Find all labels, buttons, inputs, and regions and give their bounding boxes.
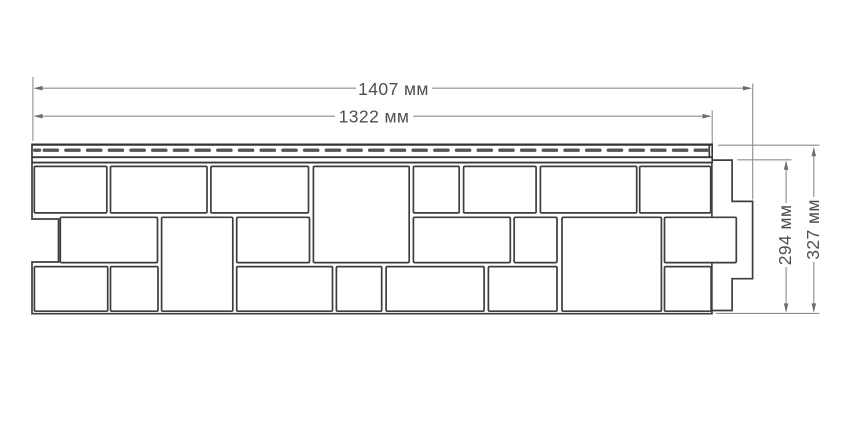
svg-text:1322 мм: 1322 мм	[339, 106, 410, 126]
svg-text:294 мм: 294 мм	[775, 205, 795, 266]
svg-text:1407 мм: 1407 мм	[358, 79, 429, 99]
svg-text:327 мм: 327 мм	[803, 199, 823, 260]
